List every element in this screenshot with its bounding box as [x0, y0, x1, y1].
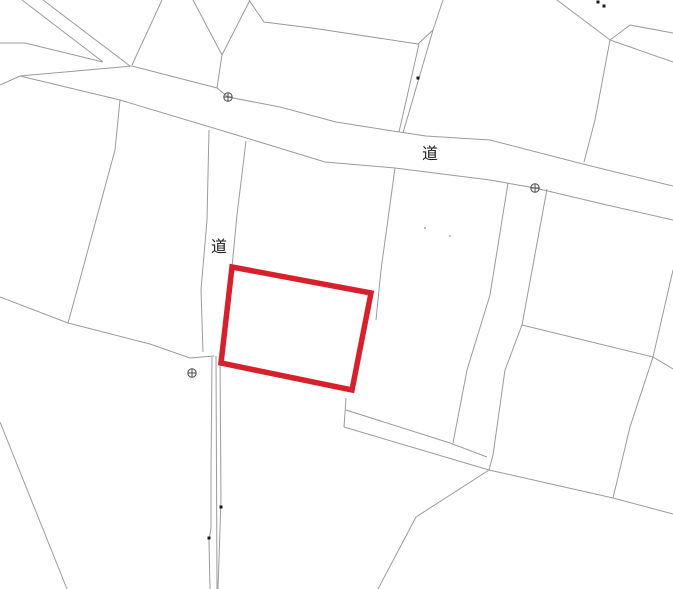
- parcel-boundary-line: [218, 357, 221, 589]
- parcel-boundary-line: [378, 470, 489, 589]
- parcel-boundary-line: [344, 398, 346, 427]
- parcel-boundary-line: [20, 76, 673, 220]
- boundary-dot: [597, 1, 600, 4]
- parcel-boundary-line: [403, 30, 433, 133]
- parcel-boundaries: [0, 0, 673, 589]
- road-label: 道: [422, 145, 438, 163]
- parcel-boundary-line: [0, 76, 20, 85]
- parcel-boundary-line: [489, 189, 547, 470]
- parcel-boundary-line: [217, 55, 222, 88]
- road-label: 道: [211, 238, 227, 256]
- parcel-boundary-line: [232, 141, 246, 267]
- parcel-boundary-line: [376, 168, 395, 320]
- parcel-boundary-line: [22, 0, 103, 62]
- parcel-boundary-line: [68, 100, 120, 323]
- parcel-boundary-line: [193, 0, 222, 55]
- parcel-boundary-line: [610, 40, 673, 62]
- parcel-boundary-line: [201, 130, 209, 352]
- map-specks: [208, 1, 606, 540]
- parcel-boundary-line: [433, 0, 443, 30]
- parcel-boundary-line: [613, 270, 673, 498]
- survey-marker-icon: [224, 93, 232, 101]
- boundary-dot: [220, 506, 223, 509]
- cadastral-map-svg: 道道: [0, 0, 673, 589]
- boundary-dot: [417, 77, 420, 80]
- parcel-boundary-line: [216, 356, 217, 589]
- faint-dot: [449, 235, 451, 237]
- parcel-boundary-line: [43, 0, 130, 66]
- highlighted-parcel: [221, 267, 371, 390]
- parcel-boundary-line: [344, 427, 489, 470]
- parcel-boundary-line: [610, 25, 673, 40]
- boundary-dot: [208, 537, 211, 540]
- faint-dot: [424, 227, 426, 229]
- highlighted-parcel-outline: [221, 267, 371, 390]
- parcel-boundary-line: [0, 43, 103, 62]
- parcel-boundary-line: [20, 66, 673, 186]
- survey-marker-icon: [531, 184, 539, 192]
- parcel-boundary-line: [0, 422, 67, 589]
- survey-marker-icon: [188, 369, 196, 377]
- parcel-boundary-line: [222, 0, 250, 55]
- parcel-boundary-line: [0, 297, 214, 358]
- map-viewport: 道道: [0, 0, 673, 589]
- parcel-boundary-line: [489, 470, 673, 514]
- boundary-dot: [603, 5, 606, 8]
- parcel-boundary-line: [584, 40, 610, 162]
- parcel-boundary-line: [522, 325, 673, 369]
- parcel-boundary-line: [249, 0, 418, 44]
- parcel-boundary-line: [209, 357, 212, 589]
- parcel-boundary-line: [557, 0, 610, 40]
- parcel-boundary-line: [132, 0, 162, 65]
